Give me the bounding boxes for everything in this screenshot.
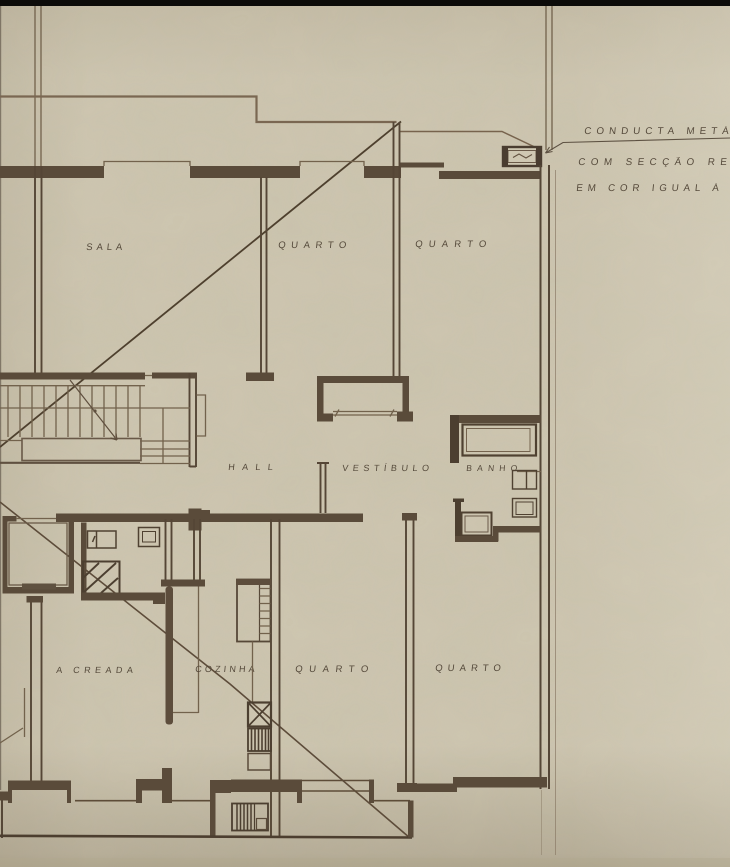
svg-text:VESTÍBULO: VESTÍBULO <box>342 463 433 473</box>
svg-text:QUARTO: QUARTO <box>435 663 506 674</box>
svg-text:A CREADA: A CREADA <box>56 665 137 675</box>
svg-text:COZINHA: COZINHA <box>195 664 258 674</box>
svg-text:BANHO: BANHO <box>466 463 522 473</box>
svg-text:CONDUCTA METÁ: CONDUCTA METÁ <box>584 126 730 137</box>
svg-text:QUARTO: QUARTO <box>278 240 352 251</box>
svg-text:EM COR IGUAL Á: EM COR IGUAL Á <box>576 183 723 194</box>
svg-text:SALA: SALA <box>86 242 127 253</box>
